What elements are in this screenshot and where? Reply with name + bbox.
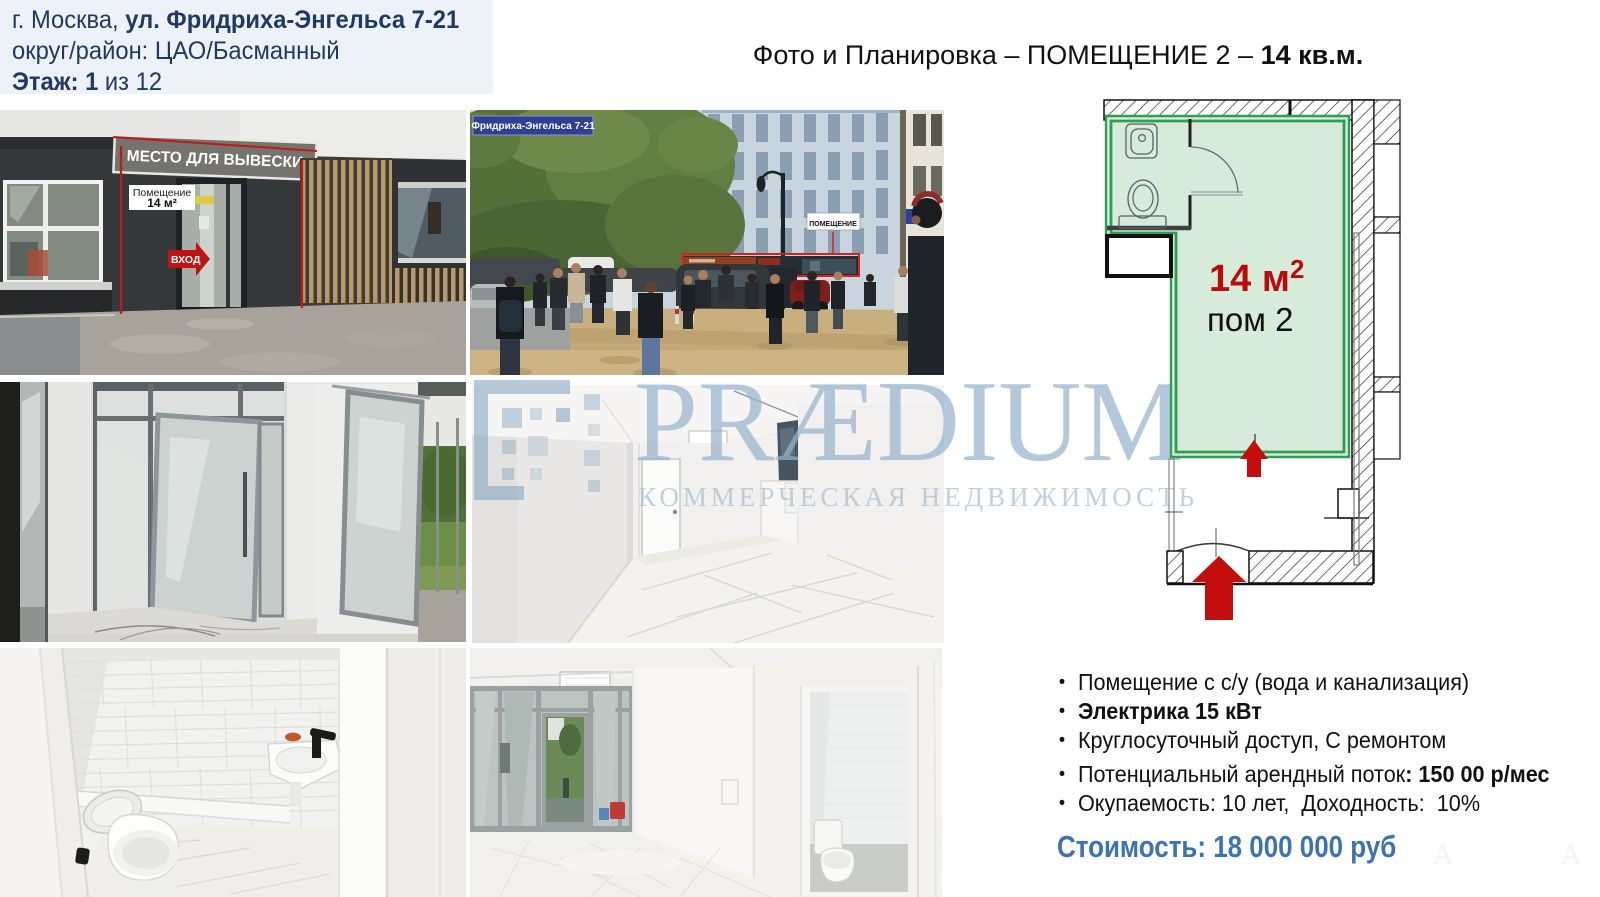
svg-text:ПОМЕЩЕНИЕ: ПОМЕЩЕНИЕ xyxy=(809,221,857,228)
svg-text:ВХОД: ВХОД xyxy=(171,254,201,266)
svg-text:Фридриха-Энгельса 7-21: Фридриха-Энгельса 7-21 xyxy=(471,121,595,132)
svg-text:пом 2: пом 2 xyxy=(1207,301,1293,338)
svg-text:14 м²: 14 м² xyxy=(147,196,177,210)
